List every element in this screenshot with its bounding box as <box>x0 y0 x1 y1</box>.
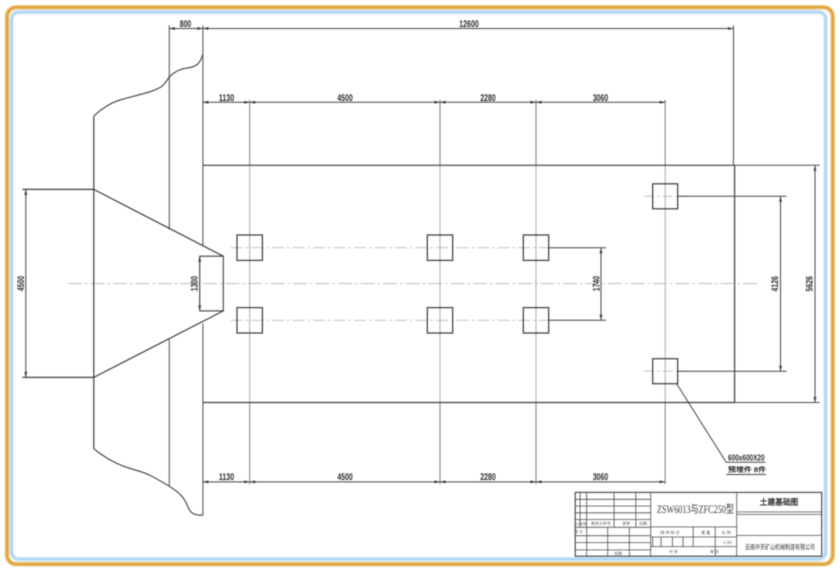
svg-text:更改文件号: 更改文件号 <box>591 521 611 526</box>
svg-text:ZSW6013与ZFC250型: ZSW6013与ZFC250型 <box>657 503 734 516</box>
svg-text:2280: 2280 <box>480 472 495 483</box>
svg-text:1130: 1130 <box>219 93 234 104</box>
svg-text:4500: 4500 <box>337 93 352 104</box>
svg-text:2280: 2280 <box>480 93 495 104</box>
svg-text:4500: 4500 <box>337 472 352 483</box>
svg-text:土建基础图: 土建基础图 <box>760 497 799 507</box>
svg-text:设 计: 设 计 <box>574 529 583 534</box>
svg-text:签字: 签字 <box>622 521 630 526</box>
svg-text:1130: 1130 <box>219 472 234 483</box>
svg-text:1740: 1740 <box>591 276 602 291</box>
svg-text:预埋件 8件: 预埋件 8件 <box>728 465 766 474</box>
svg-text:图 样 标 记: 图 样 标 记 <box>660 530 679 535</box>
svg-text:1300: 1300 <box>190 276 201 291</box>
svg-text:4500: 4500 <box>16 276 27 291</box>
svg-text:5626: 5626 <box>805 276 816 291</box>
svg-text:审 定: 审 定 <box>710 549 719 554</box>
svg-text:4126: 4126 <box>770 276 781 291</box>
svg-text:比 例: 比 例 <box>722 530 731 535</box>
svg-text:重 量: 重 量 <box>701 530 710 535</box>
svg-text:处数: 处数 <box>580 522 587 526</box>
svg-text:12600: 12600 <box>459 19 479 30</box>
svg-text:600x600X20: 600x600X20 <box>728 453 765 463</box>
svg-text:3060: 3060 <box>593 472 608 483</box>
svg-text:3060: 3060 <box>593 93 608 104</box>
svg-text:日期: 日期 <box>614 551 622 556</box>
svg-text:日期: 日期 <box>639 521 647 526</box>
svg-text:云南中天矿山机械制造有限公司: 云南中天矿山机械制造有限公司 <box>745 544 815 552</box>
svg-text:共 张: 共 张 <box>669 549 678 554</box>
svg-text:1:30: 1:30 <box>723 540 732 545</box>
svg-text:800: 800 <box>180 19 192 30</box>
